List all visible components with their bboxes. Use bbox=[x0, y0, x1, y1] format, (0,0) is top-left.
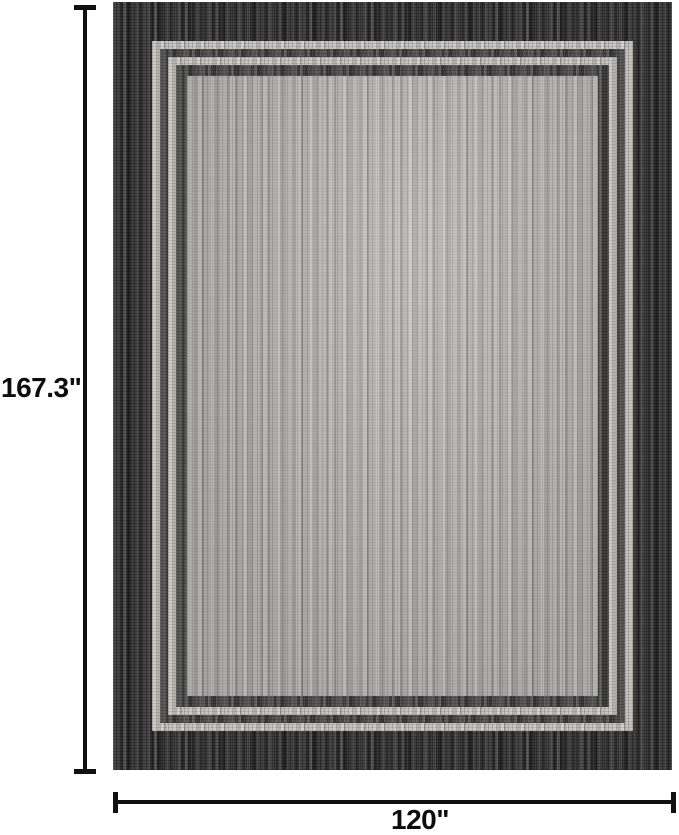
width-dimension-right-cap bbox=[671, 792, 676, 813]
width-dimension-left-cap bbox=[113, 792, 118, 813]
height-dimension-line bbox=[83, 7, 87, 773]
height-dimension-top-cap bbox=[74, 5, 96, 10]
rug-image bbox=[113, 2, 672, 770]
rug-center-field bbox=[187, 76, 598, 696]
rug-dimension-diagram: 167.3" 120" bbox=[0, 0, 679, 830]
height-dimension-label: 167.3" bbox=[1, 374, 81, 402]
height-dimension-bottom-cap bbox=[74, 769, 96, 774]
